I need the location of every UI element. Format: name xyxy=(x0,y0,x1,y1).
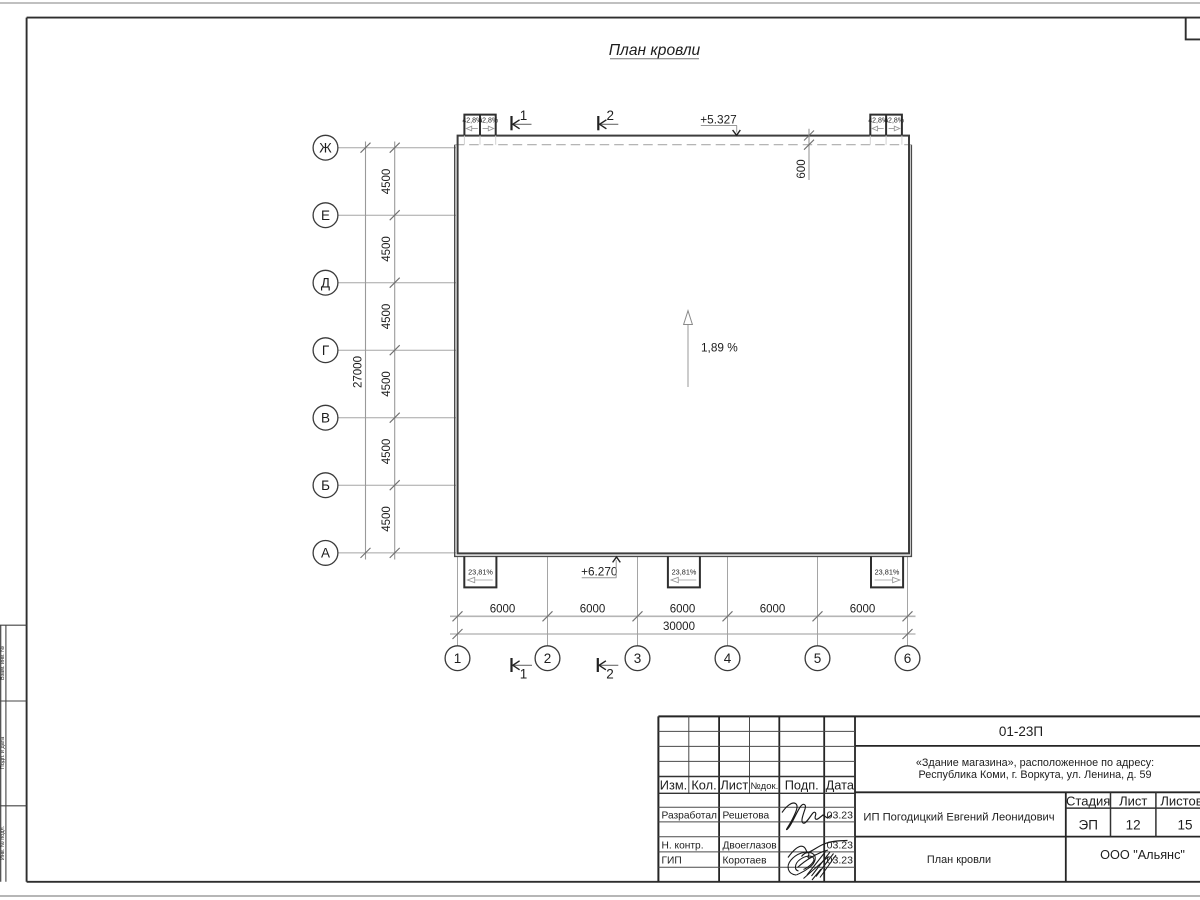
svg-text:4500: 4500 xyxy=(381,439,393,465)
svg-text:03.23: 03.23 xyxy=(827,854,853,866)
svg-text:Дата: Дата xyxy=(826,778,855,793)
svg-text:42,8%: 42,8% xyxy=(478,118,498,125)
svg-text:12: 12 xyxy=(1126,818,1141,833)
svg-text:+5.327: +5.327 xyxy=(700,113,736,127)
svg-text:Листов: Листов xyxy=(1160,794,1200,809)
svg-text:Б: Б xyxy=(321,478,330,493)
svg-text:1: 1 xyxy=(454,651,462,666)
svg-text:Решетова: Решетова xyxy=(723,811,770,822)
svg-text:1: 1 xyxy=(520,108,528,123)
svg-text:План кровли: План кровли xyxy=(609,42,701,59)
svg-text:Кол.: Кол. xyxy=(691,778,716,793)
svg-text:2: 2 xyxy=(606,667,614,682)
svg-text:ИП Погодицкий Евгений Леонидов: ИП Погодицкий Евгений Леонидович xyxy=(863,811,1054,823)
svg-text:План кровли: План кровли xyxy=(927,854,991,866)
svg-text:1: 1 xyxy=(520,667,528,682)
svg-text:4500: 4500 xyxy=(381,169,393,195)
svg-text:6000: 6000 xyxy=(670,604,696,616)
svg-text:6000: 6000 xyxy=(760,604,786,616)
svg-text:4500: 4500 xyxy=(381,506,393,532)
svg-text:Подп.: Подп. xyxy=(785,778,819,793)
svg-text:ООО "Альянс": ООО "Альянс" xyxy=(1100,848,1185,862)
svg-text:+6.270: +6.270 xyxy=(581,564,618,578)
svg-text:15: 15 xyxy=(1177,818,1192,833)
svg-text:27000: 27000 xyxy=(353,356,365,388)
svg-text:ГИП: ГИП xyxy=(662,855,682,866)
svg-text:6: 6 xyxy=(904,651,912,666)
svg-text:42,8%: 42,8% xyxy=(884,118,904,125)
svg-text:Н. контр.: Н. контр. xyxy=(662,840,704,851)
svg-text:Д: Д xyxy=(321,275,330,290)
svg-text:Стадия: Стадия xyxy=(1066,794,1110,809)
svg-text:6000: 6000 xyxy=(490,604,516,616)
svg-text:4500: 4500 xyxy=(381,371,393,397)
svg-text:Е: Е xyxy=(321,208,330,223)
svg-text:Инв. № подл.: Инв. № подл. xyxy=(0,825,6,860)
svg-text:Взам. инв. №: Взам. инв. № xyxy=(0,646,6,680)
svg-text:23,81%: 23,81% xyxy=(672,568,697,577)
svg-text:Республика Коми, г. Воркута, у: Республика Коми, г. Воркута, ул. Ленина,… xyxy=(919,769,1152,781)
svg-text:30000: 30000 xyxy=(663,621,695,633)
svg-text:«Здание магазина», расположенн: «Здание магазина», расположенное по адре… xyxy=(916,757,1154,769)
svg-text:4500: 4500 xyxy=(381,236,393,262)
svg-text:2: 2 xyxy=(607,108,615,123)
svg-text:4500: 4500 xyxy=(381,304,393,330)
svg-text:№док.: №док. xyxy=(750,781,778,792)
svg-text:Двоеглазов: Двоеглазов xyxy=(723,840,777,851)
svg-text:3: 3 xyxy=(634,651,642,666)
svg-text:2: 2 xyxy=(544,651,552,666)
svg-text:01-23П: 01-23П xyxy=(999,724,1043,739)
svg-text:600: 600 xyxy=(796,159,808,178)
svg-text:Г: Г xyxy=(322,343,330,358)
svg-text:23,81%: 23,81% xyxy=(468,568,493,577)
svg-text:А: А xyxy=(321,546,330,561)
svg-text:23,81%: 23,81% xyxy=(875,568,900,577)
svg-text:Ж: Ж xyxy=(319,140,332,155)
svg-text:6000: 6000 xyxy=(850,604,876,616)
svg-text:Разработал: Разработал xyxy=(662,810,718,822)
svg-text:6000: 6000 xyxy=(580,604,606,616)
svg-text:1,89 %: 1,89 % xyxy=(701,340,738,354)
svg-text:Коротаев: Коротаев xyxy=(723,855,767,866)
svg-text:Подп. и дата: Подп. и дата xyxy=(0,736,6,769)
svg-text:Изм.: Изм. xyxy=(660,778,687,793)
svg-text:ЭП: ЭП xyxy=(1078,818,1097,833)
svg-text:В: В xyxy=(321,410,330,425)
svg-text:5: 5 xyxy=(814,651,822,666)
svg-text:Лист: Лист xyxy=(1119,794,1147,809)
svg-text:4: 4 xyxy=(724,651,732,666)
svg-text:Лист: Лист xyxy=(720,778,748,793)
